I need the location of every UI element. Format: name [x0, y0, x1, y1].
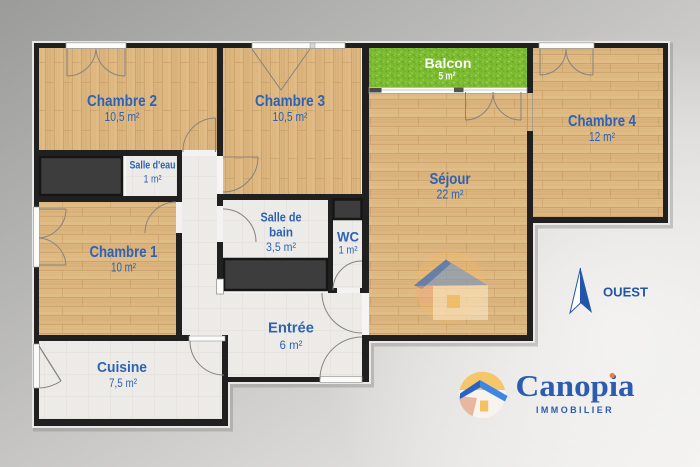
- svg-text:IMMOBILIER: IMMOBILIER: [536, 405, 614, 415]
- svg-text:10,5 m²: 10,5 m²: [105, 109, 141, 124]
- svg-text:5 m²: 5 m²: [439, 71, 456, 83]
- svg-text:Canopia: Canopia: [516, 368, 636, 403]
- svg-text:Cuisine: Cuisine: [97, 360, 147, 376]
- svg-text:WC: WC: [337, 230, 359, 245]
- svg-text:Entrée: Entrée: [268, 321, 314, 337]
- svg-text:Salle de: Salle de: [261, 210, 302, 225]
- svg-text:Chambre 3: Chambre 3: [255, 93, 325, 110]
- svg-text:Chambre 4: Chambre 4: [568, 113, 636, 130]
- svg-text:Chambre 1: Chambre 1: [90, 244, 158, 261]
- svg-text:Salle d'eau: Salle d'eau: [130, 160, 176, 172]
- svg-text:7,5 m²: 7,5 m²: [109, 376, 137, 390]
- svg-text:OUEST: OUEST: [603, 285, 648, 300]
- svg-text:1 m²: 1 m²: [339, 245, 358, 257]
- svg-text:22 m²: 22 m²: [437, 187, 465, 202]
- svg-text:Chambre 2: Chambre 2: [87, 93, 157, 110]
- svg-text:1 m²: 1 m²: [144, 174, 162, 186]
- svg-text:Balcon: Balcon: [425, 56, 472, 71]
- svg-text:6 m²: 6 m²: [280, 338, 303, 352]
- svg-text:10,5 m²: 10,5 m²: [273, 109, 309, 124]
- svg-text:bain: bain: [269, 225, 293, 240]
- svg-text:Séjour: Séjour: [430, 171, 471, 188]
- svg-text:3,5 m²: 3,5 m²: [266, 240, 296, 254]
- svg-text:12 m²: 12 m²: [589, 129, 616, 144]
- svg-text:10 m²: 10 m²: [111, 260, 137, 275]
